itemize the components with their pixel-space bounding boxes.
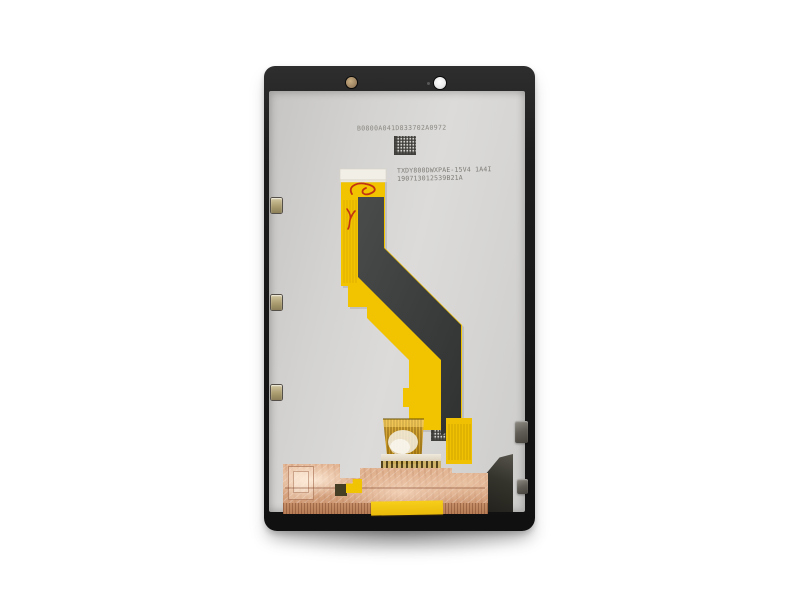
metal-tab-1: [515, 421, 528, 443]
serial-number-text: B0800A041D833702A0972: [357, 125, 447, 133]
connector-pin-row: [381, 454, 441, 468]
dark-chip: [335, 484, 347, 496]
metal-tab-2: [517, 479, 528, 494]
gold-contact-1: [271, 198, 282, 213]
datamatrix-code-top-icon: [394, 136, 416, 155]
gold-contact-2: [271, 295, 282, 310]
camera-hole-icon: [346, 77, 357, 88]
copper-ridge: [285, 487, 485, 489]
sensor-hole-icon: [434, 77, 446, 89]
microphone-hole-icon: [427, 82, 430, 85]
kapton-tape-strip: [371, 500, 443, 515]
copper-bump-inner: [293, 471, 309, 493]
datamatrix-code-bottom-icon: [431, 422, 449, 441]
part-number-text: TXDY800DWXPAE-15V4 1A4I 190713012539B21A: [397, 166, 492, 183]
product-photo: B0800A041D833702A0972 TXDY800DWXPAE-15V4…: [0, 0, 800, 600]
gold-contact-3: [271, 385, 282, 400]
